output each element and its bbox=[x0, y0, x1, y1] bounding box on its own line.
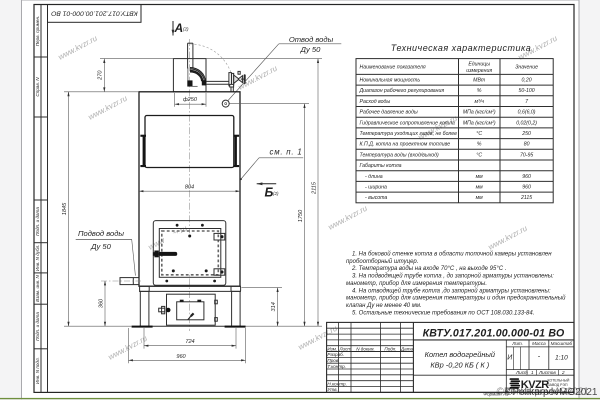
svg-text:50-100: 50-100 bbox=[519, 88, 535, 94]
svg-text:Перв. примен.: Перв. примен. bbox=[35, 16, 40, 47]
svg-text:КВТУ.017.201.00.000-01 ВО: КВТУ.017.201.00.000-01 ВО bbox=[51, 10, 138, 17]
svg-text:1750: 1750 bbox=[298, 209, 304, 222]
svg-text:Подп. и дата: Подп. и дата bbox=[35, 207, 40, 236]
svg-text:Ду 50: Ду 50 bbox=[90, 242, 112, 251]
svg-text:мм: мм bbox=[476, 195, 484, 201]
svg-text:Масса: Масса bbox=[532, 341, 546, 346]
svg-text:960: 960 bbox=[522, 185, 531, 191]
svg-text:Котел водогрейный: Котел водогрейный bbox=[425, 350, 495, 359]
svg-text:Н.контр.: Н.контр. bbox=[327, 381, 346, 386]
svg-text:Изм.: Изм. bbox=[327, 346, 337, 351]
svg-text:270: 270 bbox=[98, 70, 104, 81]
svg-text:Рабочее давление воды: Рабочее давление воды bbox=[360, 110, 418, 116]
svg-text:Лист: Лист bbox=[515, 370, 528, 375]
svg-text:360: 360 bbox=[98, 298, 104, 308]
svg-text:314: 314 bbox=[271, 302, 277, 311]
svg-text:Лист: Лист bbox=[338, 346, 351, 351]
svg-text:N докум.: N докум. bbox=[356, 346, 375, 351]
svg-text:Инв. N дубл.: Инв. N дубл. bbox=[35, 245, 40, 272]
svg-text:Утв.: Утв. bbox=[327, 387, 337, 392]
svg-text:804: 804 bbox=[185, 185, 194, 191]
svg-text:Наименование показателя: Наименование показателя bbox=[360, 65, 426, 71]
svg-text:- ширина: - ширина bbox=[365, 185, 387, 191]
svg-text:измерения: измерения bbox=[466, 68, 492, 74]
svg-text:2115: 2115 bbox=[520, 195, 532, 201]
svg-text:Температура воды (вход/выход): Температура воды (вход/выход) bbox=[360, 152, 439, 158]
svg-text:Гидравлическое сопротивление к: Гидравлическое сопротивление котла bbox=[360, 120, 455, 126]
svg-text:960: 960 bbox=[176, 354, 186, 360]
svg-text:2115: 2115 bbox=[311, 181, 317, 195]
svg-text:КОТЕЛЬНЫЙ: КОТЕЛЬНЫЙ bbox=[548, 379, 570, 383]
svg-text:Габариты котла: Габариты котла bbox=[360, 163, 402, 169]
svg-text:3. На подводящей трубе котла: 3. На подводящей трубе котла , до запорн… bbox=[352, 273, 554, 280]
svg-text:МПа (кгс/см²): МПа (кгс/см²) bbox=[463, 120, 496, 126]
svg-text:МВт: МВт bbox=[473, 78, 486, 84]
svg-text:Значение: Значение bbox=[515, 65, 538, 71]
svg-text:80: 80 bbox=[524, 142, 530, 148]
svg-text:- высота: - высота bbox=[365, 195, 387, 201]
svg-text:КВр -0,20 КБ ( К ): КВр -0,20 КБ ( К ) bbox=[430, 360, 489, 369]
svg-text:Взам. инв. N: Взам. инв. N bbox=[35, 274, 40, 301]
svg-text:Справ. N: Справ. N bbox=[35, 77, 40, 97]
svg-text:Ду 50: Ду 50 bbox=[300, 45, 322, 54]
svg-text:Отвод воды: Отвод воды bbox=[289, 35, 334, 44]
svg-text:Т.контр.: Т.контр. bbox=[327, 364, 346, 369]
svg-text:1: 1 bbox=[531, 370, 534, 375]
svg-text:Разраб.: Разраб. bbox=[327, 352, 344, 357]
svg-text:ф250: ф250 bbox=[183, 97, 198, 103]
svg-text:манометр, прибор для измерения: манометр, прибор для измерения температу… bbox=[346, 295, 566, 302]
svg-text:Инв. N подл.: Инв. N подл. bbox=[35, 357, 40, 384]
svg-text:724: 724 bbox=[185, 339, 194, 345]
svg-text:см. п. 1: см. п. 1 bbox=[270, 147, 303, 156]
svg-text:клапан Ду не менее 40 мм.: клапан Ду не менее 40 мм. bbox=[346, 303, 422, 309]
svg-text:манометр, прибор для измерения: манометр, прибор для измерения температу… bbox=[346, 281, 487, 287]
svg-text:1845: 1845 bbox=[62, 202, 68, 215]
svg-text:пробоотборный штуцер.: пробоотборный штуцер. bbox=[346, 258, 418, 265]
svg-text:Единицы: Единицы bbox=[468, 62, 490, 68]
svg-text:Диапазон рабочего регулировани: Диапазон рабочего регулирования bbox=[359, 88, 445, 94]
svg-text:Расход воды: Расход воды bbox=[360, 99, 391, 105]
svg-text:Листов: Листов bbox=[538, 370, 556, 375]
svg-text:(2): (2) bbox=[183, 27, 189, 32]
svg-text:1:10: 1:10 bbox=[555, 355, 568, 362]
svg-text:А: А bbox=[174, 21, 184, 35]
svg-text:Номинальная мощность: Номинальная мощность bbox=[360, 78, 421, 84]
svg-text:0,02(0,2): 0,02(0,2) bbox=[516, 120, 537, 126]
svg-text:Подвод воды: Подвод воды bbox=[78, 229, 124, 238]
svg-text:°С: °С bbox=[476, 152, 482, 158]
svg-text:1. На боковой стенке котла в: 1. На боковой стенке котла в области топ… bbox=[352, 251, 552, 258]
svg-text:70-95: 70-95 bbox=[520, 152, 533, 158]
svg-text:МПа (кгс/см²): МПа (кгс/см²) bbox=[463, 110, 496, 116]
svg-text:Подп.: Подп. bbox=[384, 346, 396, 351]
svg-text:Масштаб: Масштаб bbox=[551, 341, 573, 346]
svg-text:Пров.: Пров. bbox=[327, 358, 339, 363]
svg-text:°С: °С bbox=[476, 131, 482, 137]
svg-text:5. Остальные технические треб: 5. Остальные технические требования по О… bbox=[352, 310, 534, 316]
svg-text:Температура уходящих газов, не: Температура уходящих газов, не более bbox=[360, 131, 458, 137]
svg-text:2. Температура воды на входе: 2. Температура воды на входе 70°С , на в… bbox=[351, 266, 506, 272]
svg-text:%: % bbox=[477, 142, 482, 148]
svg-text:Лит.: Лит. bbox=[511, 341, 523, 346]
svg-text:2: 2 bbox=[561, 370, 565, 375]
svg-text:4. На отводящей трубе котла ,: 4. На отводящей трубе котла ,до запорной… bbox=[352, 287, 551, 294]
svg-text:Техническая характеристика: Техническая характеристика bbox=[391, 43, 531, 53]
svg-text:КВТУ.017.201.00.000-01 ВО: КВТУ.017.201.00.000-01 ВО bbox=[423, 327, 565, 339]
svg-text:0,20: 0,20 bbox=[522, 78, 532, 84]
svg-text:мм: мм bbox=[476, 185, 484, 191]
svg-text:0,6(6,0): 0,6(6,0) bbox=[518, 110, 536, 116]
svg-text:(2): (2) bbox=[273, 191, 279, 196]
svg-text:250: 250 bbox=[521, 131, 531, 137]
svg-text:Подп. и дата: Подп. и дата bbox=[35, 312, 40, 341]
svg-text:%: % bbox=[477, 88, 482, 94]
svg-text:- длина: - длина bbox=[365, 174, 383, 180]
svg-text:Дата: Дата bbox=[400, 346, 414, 351]
svg-text:К.П.Д. котла на проектном топл: К.П.Д. котла на проектном топливе bbox=[360, 142, 451, 148]
svg-text:©PolikarpovMG2021: ©PolikarpovMG2021 bbox=[505, 387, 598, 398]
svg-text:мм: мм bbox=[476, 174, 484, 180]
svg-text:960: 960 bbox=[522, 174, 531, 180]
svg-text:м³/ч: м³/ч bbox=[474, 99, 484, 105]
